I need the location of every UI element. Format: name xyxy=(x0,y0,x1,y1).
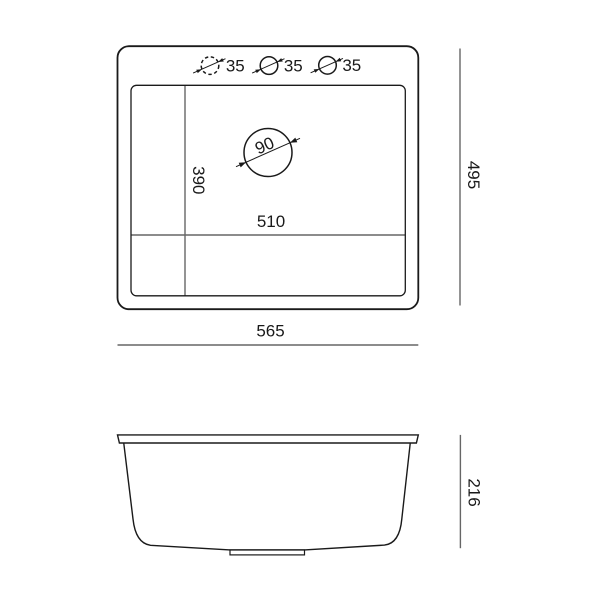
svg-text:35: 35 xyxy=(226,56,245,75)
svg-text:565: 565 xyxy=(256,322,284,341)
svg-text:35: 35 xyxy=(342,56,361,75)
svg-text:390: 390 xyxy=(189,166,208,194)
svg-text:495: 495 xyxy=(464,161,483,189)
svg-text:510: 510 xyxy=(257,212,285,231)
svg-text:216: 216 xyxy=(464,478,483,506)
svg-text:35: 35 xyxy=(284,56,303,75)
